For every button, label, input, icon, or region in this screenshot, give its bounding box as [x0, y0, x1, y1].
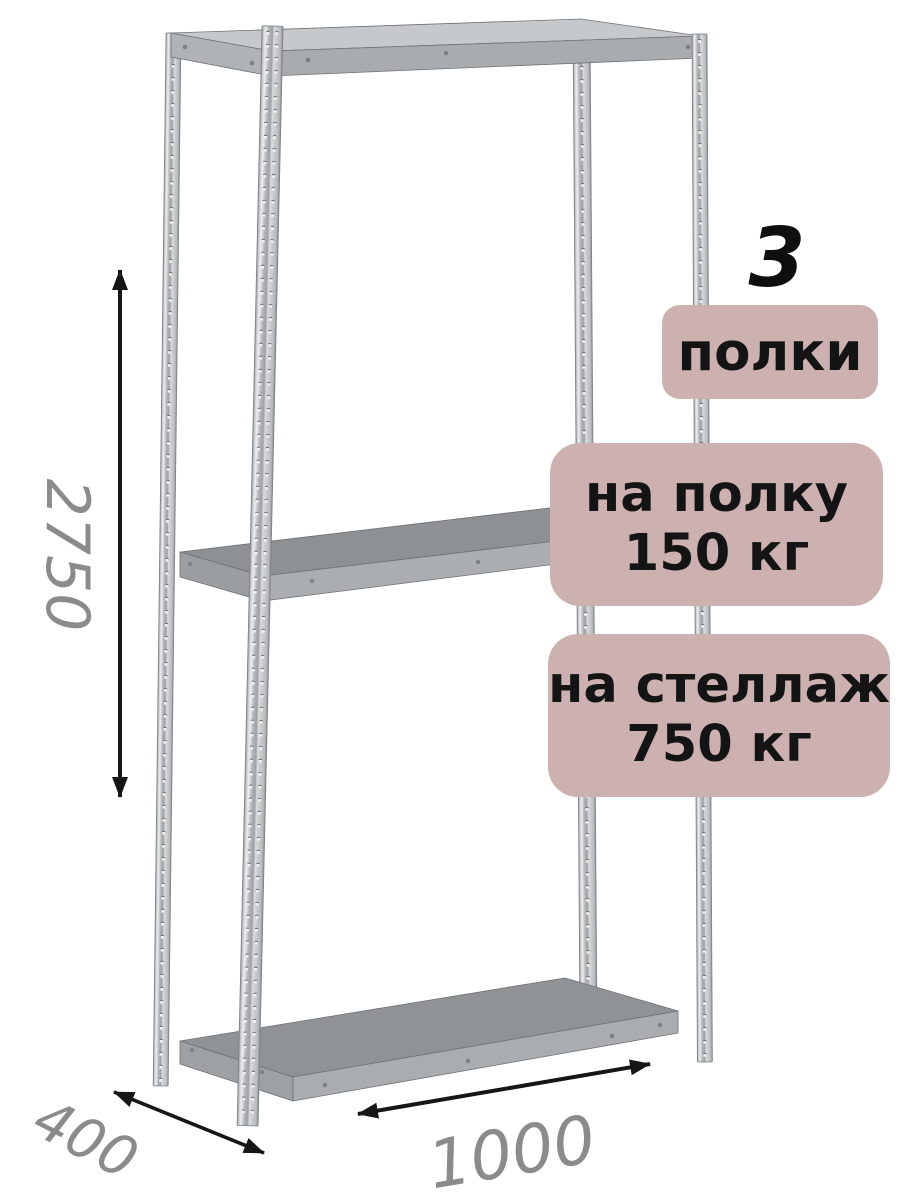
height-dimension-label: 2750	[33, 455, 101, 655]
rack-load-badge-line2: 750 кг	[626, 716, 811, 774]
rack-load-badge-line1: на стеллаж	[548, 657, 890, 715]
shelf-load-badge: на полку 150 кг	[550, 443, 883, 606]
rack-load-badge: на стеллаж 750 кг	[548, 634, 890, 797]
shelf-count-badge: полки	[662, 305, 878, 399]
shelf-load-badge-line1: на полку	[585, 466, 848, 524]
product-image: 2750 400 1000 3 полки на полку 150 кг на…	[0, 0, 900, 1200]
shelf-count-badge-label: полки	[678, 322, 863, 383]
shelf-count-number: 3	[722, 218, 832, 300]
shelf-load-badge-line2: 150 кг	[624, 525, 809, 583]
top-shelf	[171, 19, 700, 76]
back-left-post	[153, 33, 181, 1086]
